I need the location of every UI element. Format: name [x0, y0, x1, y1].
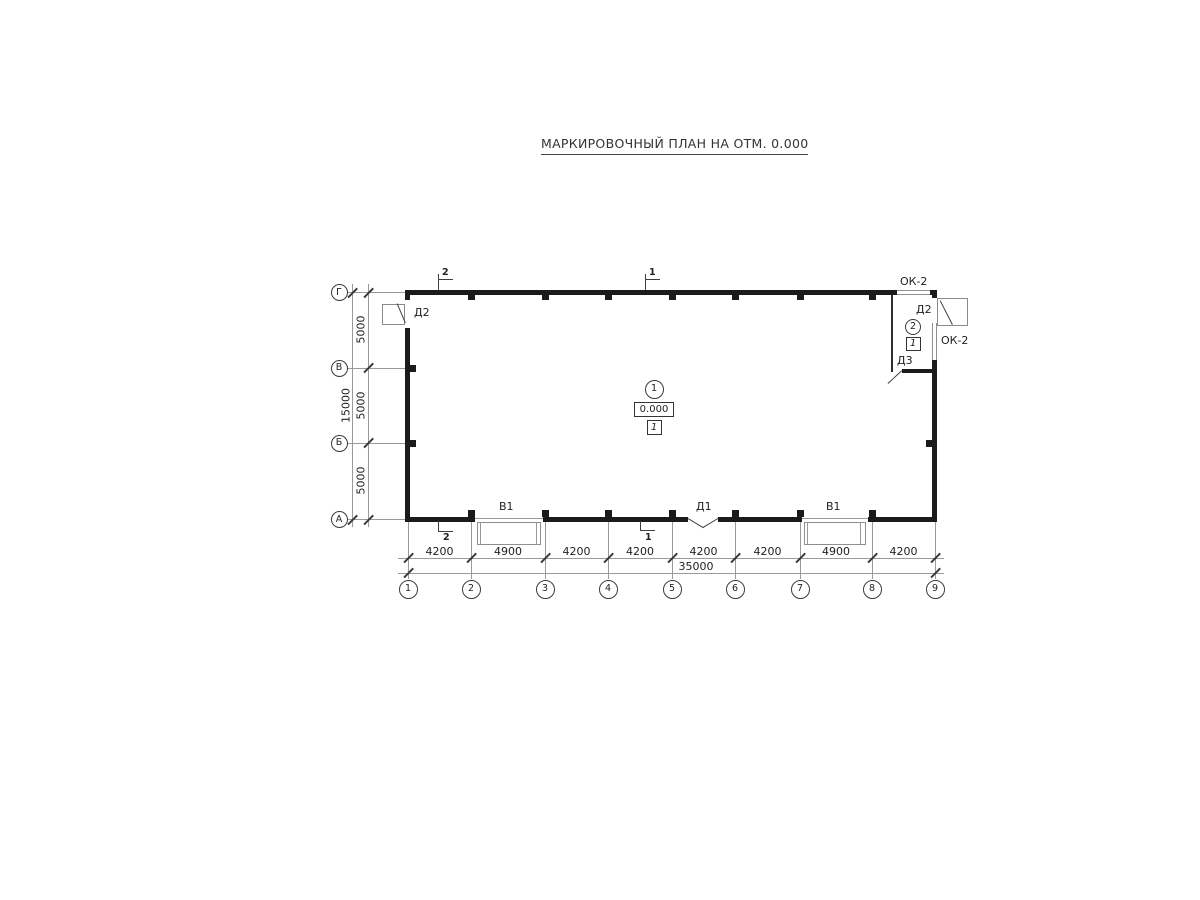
column-top-7: [797, 293, 804, 300]
partition-room2-bottom: [902, 369, 932, 373]
section-mark-top-1-bar: [645, 279, 660, 280]
door-d2-right-label: Д2: [916, 304, 932, 315]
ext-line-col-4: [608, 522, 609, 579]
axis-bubble-col-1: 1: [399, 580, 418, 599]
section-mark-bottom-1-label: 1: [645, 533, 652, 543]
section-mark-top-2-bar: [438, 279, 453, 280]
column-top-3: [542, 293, 549, 300]
dim-total-bottom-label: 35000: [666, 561, 726, 572]
section-mark-bottom-1-tick: [640, 521, 642, 531]
wall-bottom-seg-2: [543, 517, 688, 522]
partition-room2-left: [891, 295, 893, 372]
column-bottom-5: [669, 510, 676, 517]
gate-v1-left-ramp-line-r: [536, 523, 537, 544]
column-top-8: [869, 293, 876, 300]
axis-bubble-col-3: 3: [536, 580, 555, 599]
wall-bottom-seg-3: [718, 517, 802, 522]
dim-span-bottom-2: 4200: [557, 546, 597, 557]
gate-v1-right-label: В1: [826, 501, 841, 512]
ext-line-col-6: [735, 522, 736, 579]
ext-line-col-2: [471, 522, 472, 579]
column-bottom-2: [468, 510, 475, 517]
gate-v1-left-label: В1: [499, 501, 514, 512]
gate-v1-right-ramp-line-r: [860, 523, 861, 544]
axis-bubble-col-2: 2: [462, 580, 481, 599]
axis-line-row-b: [348, 443, 405, 444]
dim-span-left-1: 5000: [356, 375, 367, 435]
ext-line-col-3: [545, 522, 546, 579]
dim-line-left-spans: [368, 284, 369, 527]
window-ok2-right-opening: [932, 323, 937, 360]
axis-bubble-row-g: Г: [331, 284, 348, 301]
column-bottom-6: [732, 510, 739, 517]
dim-span-bottom-0: 4200: [420, 546, 460, 557]
axis-bubble-col-8: 8: [863, 580, 882, 599]
column-left-row-b: [409, 440, 416, 447]
column-bottom-7: [797, 510, 804, 517]
axis-bubble-col-5: 5: [663, 580, 682, 599]
floor-type-tag-room2: 1: [906, 337, 921, 351]
dim-span-left-0: 5000: [356, 300, 367, 360]
gate-v1-right-ramp-line-l: [807, 523, 808, 544]
axis-line-row-v: [348, 368, 405, 369]
section-mark-top-1-tick: [645, 274, 647, 290]
column-top-6: [732, 293, 739, 300]
room-number-bubble-1: 1: [645, 380, 664, 399]
axis-bubble-col-7: 7: [791, 580, 810, 599]
gate-v1-left-ramp: [477, 522, 541, 545]
window-ok2-right-label: ОК-2: [941, 335, 968, 346]
axis-line-row-a: [348, 519, 405, 520]
wall-bottom-seg-1: [405, 517, 475, 522]
wall-left-above-door: [405, 290, 410, 300]
dim-span-bottom-5: 4200: [748, 546, 788, 557]
dim-span-bottom-6: 4900: [816, 546, 856, 557]
dim-total-left-label: 15000: [340, 371, 351, 441]
dim-span-bottom-7: 4200: [884, 546, 924, 557]
window-ok2-top-opening: [897, 290, 930, 295]
door-d1-leaf-right: [703, 518, 719, 528]
section-mark-top-2-label: 2: [442, 268, 449, 278]
wall-top-main: [405, 290, 897, 295]
ext-line-col-7: [800, 522, 801, 579]
section-mark-top-2-tick: [438, 274, 440, 290]
gate-v1-left-threshold: [475, 518, 543, 519]
section-mark-top-1-label: 1: [649, 268, 656, 278]
section-mark-bottom-2-tick: [438, 521, 440, 531]
door-d3-leaf: [888, 370, 903, 384]
floor-type-tag-room1: 1: [647, 420, 662, 435]
column-top-4: [605, 293, 612, 300]
axis-bubble-col-4: 4: [599, 580, 618, 599]
section-mark-bottom-2-label: 2: [443, 533, 450, 543]
dim-span-bottom-1: 4900: [488, 546, 528, 557]
wall-right-top-stub: [932, 290, 937, 298]
column-bottom-3: [542, 510, 549, 517]
axis-bubble-row-a: А: [331, 511, 348, 528]
column-left-row-v: [409, 365, 416, 372]
door-d1-label: Д1: [696, 501, 712, 512]
door-d3-label: Д3: [897, 355, 913, 366]
axis-line-row-g: [348, 292, 405, 293]
axis-bubble-col-9: 9: [926, 580, 945, 599]
plan-title: МАРКИРОВОЧНЫЙ ПЛАН НА ОТМ. 0.000: [541, 136, 808, 155]
wall-bottom-seg-4: [868, 517, 937, 522]
elevation-tag: 0.000: [634, 402, 674, 417]
axis-bubble-row-v: В: [331, 360, 348, 377]
window-ok2-top-label: ОК-2: [900, 276, 927, 287]
dim-span-bottom-3: 4200: [620, 546, 660, 557]
axis-bubble-col-6: 6: [726, 580, 745, 599]
marking-plan-drawing: МАРКИРОВОЧНЫЙ ПЛАН НА ОТМ. 0.000: [0, 0, 1200, 900]
room-number-bubble-2: 2: [905, 319, 921, 335]
gate-v1-left-ramp-line-l: [480, 523, 481, 544]
door-d2-left-label: Д2: [414, 307, 430, 318]
wall-left-below-door: [405, 328, 410, 522]
column-right-row-b: [926, 440, 933, 447]
dim-span-left-2: 5000: [356, 451, 367, 511]
gate-v1-right-threshold: [802, 518, 868, 519]
column-top-2: [468, 293, 475, 300]
column-top-5: [669, 293, 676, 300]
door-d1-leaf-left: [688, 518, 704, 528]
axis-bubble-row-b: Б: [331, 435, 348, 452]
gate-v1-right-ramp: [804, 522, 866, 545]
column-bottom-8: [869, 510, 876, 517]
dim-line-bottom-total: [398, 573, 944, 574]
ext-line-col-8: [872, 522, 873, 579]
column-bottom-4: [605, 510, 612, 517]
dim-span-bottom-4: 4200: [684, 546, 724, 557]
